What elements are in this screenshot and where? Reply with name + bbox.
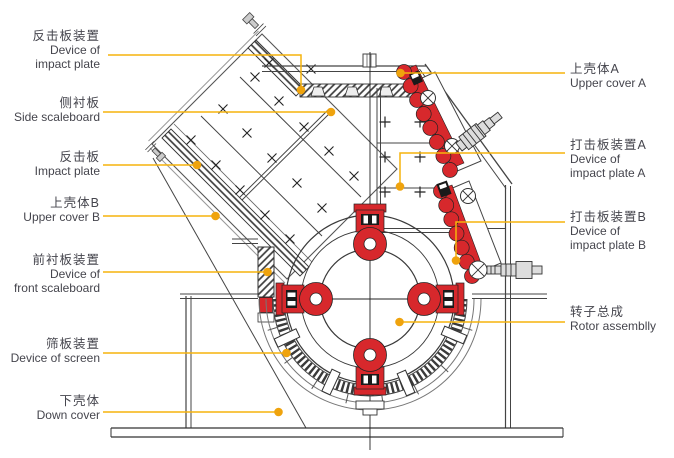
rotor-hammer-east <box>408 283 465 316</box>
crusher-diagram-page: 反击板装置 Device of impact plate 侧衬板 Side sc… <box>0 0 674 458</box>
label-cn: 打击板装置B <box>570 210 674 224</box>
callout-label-down-cover: 下壳体 Down cover <box>0 394 100 422</box>
front-scaleboard <box>258 247 274 322</box>
label-en: Impact plate <box>0 164 100 178</box>
label-en: Device of impact plate B <box>570 224 674 252</box>
label-en: Down cover <box>0 408 100 422</box>
label-cn: 上壳体B <box>0 196 100 210</box>
callout-label-front-scaleboard-device: 前衬板装置 Device of front scaleboard <box>0 253 100 295</box>
rotor-hammer-south <box>354 339 387 396</box>
label-en: Side scaleboard <box>0 110 100 124</box>
label-cn: 侧衬板 <box>0 96 100 110</box>
label-cn: 上壳体A <box>570 62 674 76</box>
label-cn: 前衬板装置 <box>0 253 100 267</box>
label-en: Device of impact plate <box>0 43 100 71</box>
label-en: Device of front scaleboard <box>0 267 100 295</box>
callout-label-impact-plate-device: 反击板装置 Device of impact plate <box>0 29 100 71</box>
bottom-mount-block <box>356 401 384 415</box>
callout-label-screen-device: 筛板装置 Device of screen <box>0 337 100 365</box>
label-en: Rotor assemblly <box>570 319 674 333</box>
label-cn: 反击板装置 <box>0 29 100 43</box>
label-en: Upper cover A <box>570 76 674 90</box>
plate-b-bolt-head <box>461 189 476 204</box>
chute-apex-bolt <box>241 11 266 36</box>
label-cn: 转子总成 <box>570 305 674 319</box>
callout-label-side-scaleboard: 侧衬板 Side scaleboard <box>0 96 100 124</box>
callout-label-impact-plate: 反击板 Impact plate <box>0 150 100 178</box>
impact-plate-a-red <box>397 65 505 178</box>
label-cn: 反击板 <box>0 150 100 164</box>
label-en: Device of impact plate A <box>570 152 674 180</box>
label-cn: 筛板装置 <box>0 337 100 351</box>
callout-label-impact-plate-a-device: 打击板装置A Device of impact plate A <box>570 138 674 180</box>
impact-plate-b-red <box>434 181 543 284</box>
callout-label-impact-plate-b-device: 打击板装置B Device of impact plate B <box>570 210 674 252</box>
label-cn: 打击板装置A <box>570 138 674 152</box>
base-frame <box>111 428 563 437</box>
callout-label-upper-cover-a: 上壳体A Upper cover A <box>570 62 674 90</box>
callout-label-rotor-assembly: 转子总成 Rotor assemblly <box>570 305 674 333</box>
label-en: Upper cover B <box>0 210 100 224</box>
label-en: Device of screen <box>0 351 100 365</box>
cover-stub <box>363 54 376 67</box>
bolt-assembly-b <box>469 261 542 279</box>
rotor-hammer-west <box>276 283 333 316</box>
callout-label-upper-cover-b: 上壳体B Upper cover B <box>0 196 100 224</box>
rotor-hammer-north <box>354 204 387 261</box>
label-cn: 下壳体 <box>0 394 100 408</box>
